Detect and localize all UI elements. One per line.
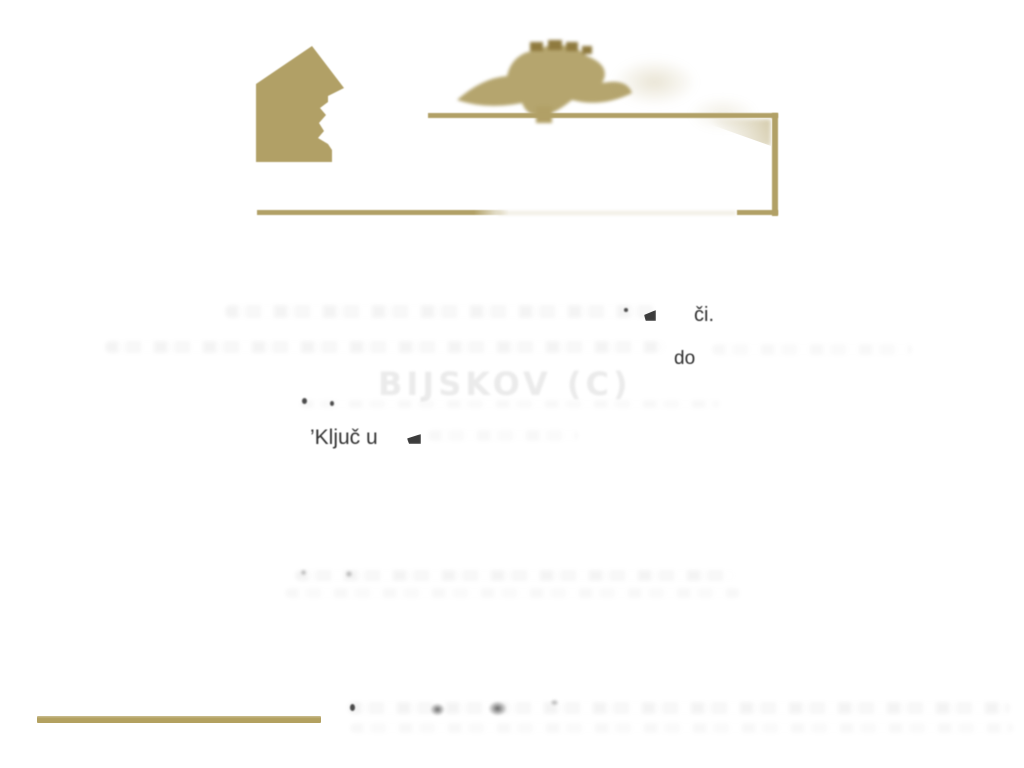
faded-mark [430, 703, 445, 716]
ghost-title: BIJSKOV (C) [378, 365, 632, 403]
faded-mark [300, 569, 307, 576]
logo-frame-bottom-faded [498, 211, 736, 215]
faded-text-smudge [348, 702, 1010, 714]
faded-mark [488, 701, 507, 716]
house-icon [256, 44, 348, 166]
faded-mark [624, 308, 628, 312]
bottom-gold-rule [37, 716, 321, 723]
faded-text-smudge [300, 400, 720, 408]
fragment-do: do [674, 348, 695, 370]
logo-frame-bottom-right-stub [737, 210, 778, 215]
faded-flyer-page: { "colors": { "gold": "#b1a066", "gold_d… [0, 0, 1024, 768]
laurel-ornament-icon [452, 38, 637, 123]
faded-mark [330, 401, 334, 406]
fragment-kljuc: ’Ključ u [310, 426, 378, 450]
faded-text-smudge [295, 570, 735, 581]
faded-text-smudge [428, 430, 578, 441]
fragment-ci: či. [694, 304, 714, 327]
faded-text-smudge [712, 344, 912, 355]
faded-text-smudge [350, 723, 1014, 733]
ornament-wisp [612, 58, 697, 106]
faded-mark [345, 570, 353, 578]
faded-mark [302, 398, 307, 404]
faded-mark [550, 699, 559, 706]
logo-frame-top-line [428, 113, 778, 118]
faded-mark [350, 704, 355, 711]
faded-mark [407, 434, 421, 444]
logo-frame-right-line [772, 113, 778, 216]
logo-underline [257, 210, 509, 215]
faded-text-smudge [225, 305, 655, 318]
faded-text-smudge [105, 341, 665, 353]
faded-text-smudge [285, 588, 740, 598]
frame-corner-streak [695, 119, 771, 146]
